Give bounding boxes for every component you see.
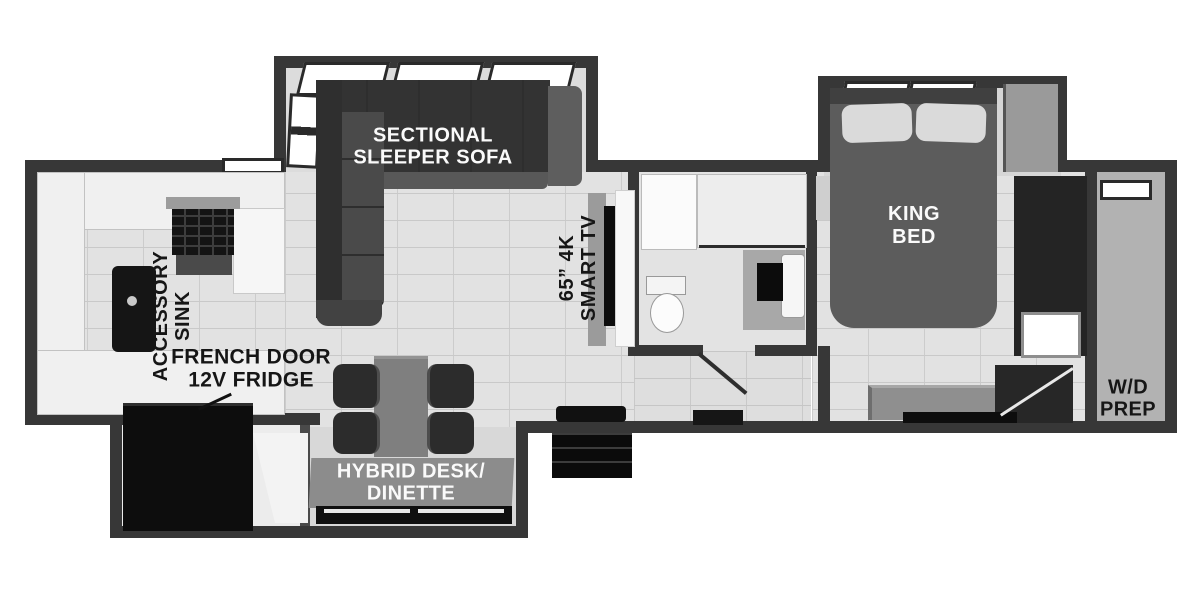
dinette-label-line2: DINETTE [337, 483, 485, 505]
king-slideout-closet [1003, 84, 1058, 172]
smart-tv [604, 206, 615, 326]
floor-vent [693, 410, 743, 425]
dinette-slideout-right-wall [516, 425, 528, 538]
entry-door-mat [556, 406, 626, 422]
king-bed-label: KING BED [888, 203, 940, 249]
french-door-fridge [123, 403, 253, 531]
wd-prep-label-line1: W/D [1100, 377, 1156, 399]
vanity-sink [781, 254, 805, 318]
dinette-chair-bottom-right [427, 412, 474, 454]
main-bottom-wall [516, 421, 1177, 433]
bedroom-entry-wall-stub [818, 346, 830, 425]
floorplan-canvas: SECTIONAL SLEEPER SOFA 65” 4K SMART TV K… [0, 0, 1200, 600]
right-outer-wall [1165, 160, 1177, 433]
pillow-right [915, 103, 986, 143]
cooktop [172, 209, 234, 255]
dinette-chair-top-right [427, 364, 474, 408]
dinette-chair-top-left [333, 364, 380, 408]
dinette-window-pane-2 [418, 509, 504, 513]
bathroom-linen-cabinet [641, 174, 697, 250]
pillow-left [841, 103, 912, 143]
range-hood [166, 197, 240, 209]
dinette-label: HYBRID DESK/ DINETTE [337, 461, 485, 506]
tv-label: 65” 4K SMART TV [556, 215, 600, 321]
dinette-chair-bottom-left [333, 412, 380, 454]
kitchen-left-wall [25, 160, 37, 425]
toilet-bowl [650, 293, 684, 333]
wd-window [1100, 180, 1152, 200]
mid-top-wall [587, 160, 818, 172]
sofa-label: SECTIONAL SLEEPER SOFA [353, 125, 512, 170]
sofa-chaise-end [316, 300, 382, 326]
fridge-label-line1: FRENCH DOOR [171, 346, 331, 369]
nightstand [816, 176, 830, 220]
shower-glass-door [699, 245, 805, 248]
fridge-label-line2: 12V FRIDGE [171, 369, 331, 392]
dinette-label-line1: HYBRID DESK/ [337, 461, 485, 483]
kitchen-counter-return [233, 208, 285, 294]
king-bed-label-line1: KING [888, 203, 940, 226]
accessory-sink-label-line1: ACCESSORY [150, 251, 172, 381]
wardrobe-window [1021, 312, 1081, 358]
shower [697, 174, 807, 248]
entry-steps [552, 433, 632, 478]
tv-label-line2: SMART TV [578, 215, 600, 321]
king-slideout-left-wall [818, 76, 830, 172]
medicine-cabinet [757, 263, 783, 301]
fridge-bay-left-wall [110, 425, 122, 538]
dinette-window-pane-1 [324, 509, 410, 513]
bathroom-bottom-wall-right [755, 345, 817, 356]
tv-label-line1: 65” 4K [556, 215, 578, 321]
king-bed-label-line2: BED [888, 226, 940, 249]
sofa-back-left-arm [316, 80, 342, 318]
right-top-wall [1056, 160, 1177, 172]
bathroom-bottom-wall-left [628, 345, 703, 356]
wd-prep-label: W/D PREP [1100, 377, 1156, 422]
kitchen-faucet [127, 296, 137, 306]
sofa-slideout-left-wall [274, 56, 286, 172]
sofa-slideout-right-wall [586, 56, 598, 172]
tv-wall-panel [615, 190, 635, 347]
wd-prep-label-line2: PREP [1100, 399, 1156, 421]
sofa-label-line2: SLEEPER SOFA [353, 147, 512, 169]
kitchen-top-wall [25, 160, 222, 172]
fridge-label: FRENCH DOOR 12V FRIDGE [171, 346, 331, 391]
dinette-table [374, 356, 428, 457]
sofa-armrest-right [548, 86, 582, 186]
dinette-slideout-bottom-wall [302, 526, 528, 538]
sofa-label-line1: SECTIONAL [353, 125, 512, 147]
